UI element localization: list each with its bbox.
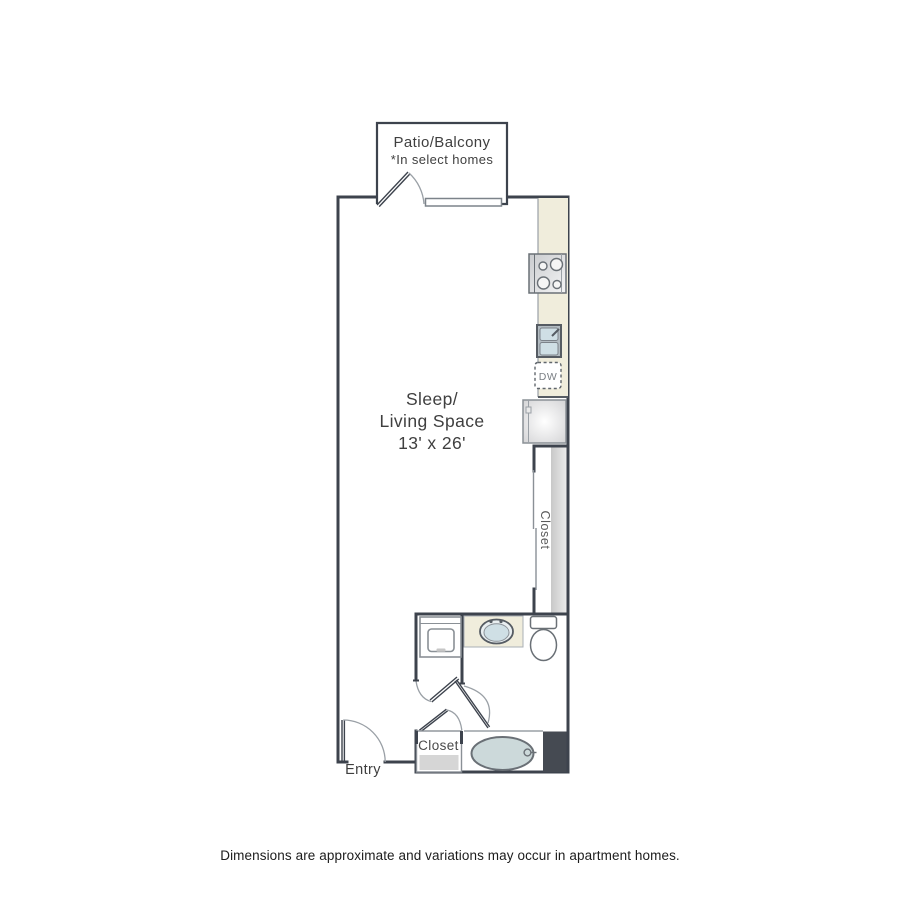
patio-balcony-room: Patio/Balcony *In select homes xyxy=(377,123,507,207)
door-arc xyxy=(464,686,490,723)
kitchen-sink-icon xyxy=(537,325,561,357)
vanity-sink-icon xyxy=(480,620,513,644)
washer-dryer-icon xyxy=(420,617,461,657)
entry: Entry xyxy=(342,720,385,778)
patio-label: Patio/Balcony xyxy=(394,134,491,151)
bathroom-door-upper xyxy=(413,677,459,702)
dishwasher-label: DW xyxy=(539,371,558,383)
window xyxy=(426,199,502,207)
disclaimer-text: Dimensions are approximate and variation… xyxy=(0,848,900,863)
toilet-icon xyxy=(531,617,557,661)
bathtub-icon xyxy=(472,737,537,770)
living-space-line2: Living Space xyxy=(379,411,484,431)
bathroom-door-long xyxy=(455,680,490,728)
door-arc xyxy=(416,681,431,702)
patio-note: *In select homes xyxy=(391,152,494,167)
closet-entry: Closet xyxy=(417,731,462,772)
dishwasher-icon: DW xyxy=(535,363,561,389)
floor-plan-page: Patio/Balcony *In select homes xyxy=(0,0,900,900)
entry-door-arc xyxy=(343,720,385,762)
closet-right-label: Closet xyxy=(538,510,552,549)
wall-left-and-top xyxy=(338,197,378,762)
living-space-dimensions: 13' x 26' xyxy=(398,433,466,453)
closet-rod-strip xyxy=(551,448,567,613)
kitchen: DW xyxy=(523,198,568,443)
tub-surround-block xyxy=(543,732,567,773)
closet-right: Closet xyxy=(534,448,567,613)
vanity xyxy=(464,616,523,647)
floor-plan-svg: Patio/Balcony *In select homes xyxy=(0,0,900,900)
closet-entry-door xyxy=(419,709,461,732)
entry-label: Entry xyxy=(345,762,381,778)
closet-shelf xyxy=(420,755,459,770)
bathroom xyxy=(413,616,557,732)
stove-icon xyxy=(529,254,566,293)
closet-entry-label: Closet xyxy=(418,738,459,753)
refrigerator-icon xyxy=(523,400,566,443)
living-space-label: Sleep/ Living Space 13' x 26' xyxy=(379,389,484,453)
living-space-line1: Sleep/ xyxy=(406,389,458,409)
bathtub-area xyxy=(464,731,567,772)
door-arc xyxy=(447,710,462,730)
